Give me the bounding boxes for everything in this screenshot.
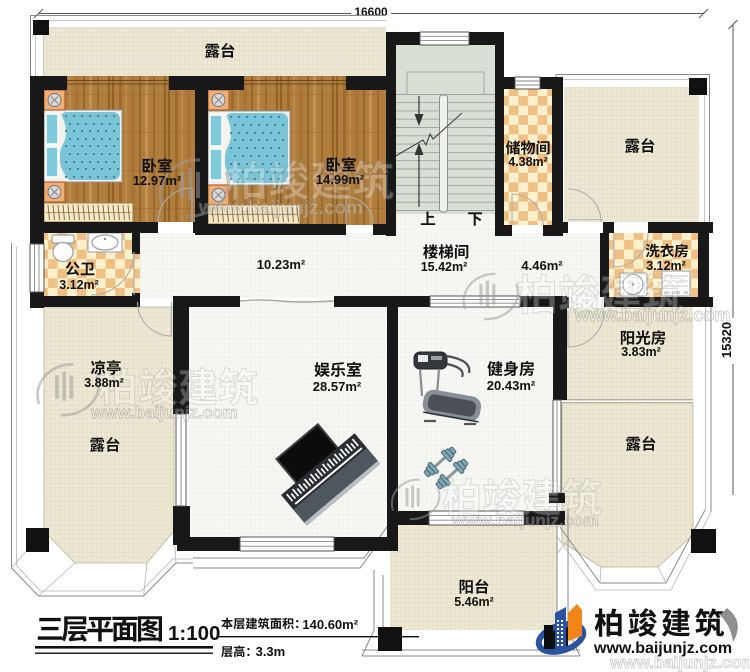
- svg-text:14.99m²: 14.99m²: [316, 172, 365, 187]
- svg-text:10.23m²: 10.23m²: [257, 257, 306, 272]
- svg-text:140.60m²: 140.60m²: [302, 617, 358, 632]
- svg-text:www.baijunjz.com: www.baijunjz.com: [451, 511, 599, 530]
- svg-text:20.43m²: 20.43m²: [487, 378, 536, 393]
- svg-text:1:100: 1:100: [168, 622, 220, 645]
- svg-text:28.57m²: 28.57m²: [313, 379, 362, 394]
- svg-text:www.baijunjz.com: www.baijunjz.com: [574, 305, 730, 325]
- svg-text:3.3m: 3.3m: [256, 644, 286, 659]
- svg-text:www.baijunjz.com: www.baijunjz.com: [593, 640, 732, 657]
- svg-text:12.97m²: 12.97m²: [133, 173, 182, 188]
- svg-text:www.baijunjz.com: www.baijunjz.com: [90, 403, 238, 422]
- svg-text:15.42m²: 15.42m²: [421, 260, 468, 274]
- svg-text:3.12m²: 3.12m²: [59, 278, 99, 292]
- svg-text:3.88m²: 3.88m²: [84, 376, 124, 390]
- svg-text:www.baijunjz.com: www.baijunjz.com: [198, 198, 363, 219]
- svg-text:3.83m²: 3.83m²: [621, 345, 661, 359]
- svg-text:4.46m²: 4.46m²: [521, 258, 563, 273]
- svg-text:4.38m²: 4.38m²: [508, 155, 548, 169]
- svg-text:16600: 16600: [354, 5, 388, 19]
- svg-text:5.46m²: 5.46m²: [454, 595, 494, 609]
- svg-text:3.12m²: 3.12m²: [646, 259, 686, 273]
- svg-text:15320: 15320: [719, 322, 734, 358]
